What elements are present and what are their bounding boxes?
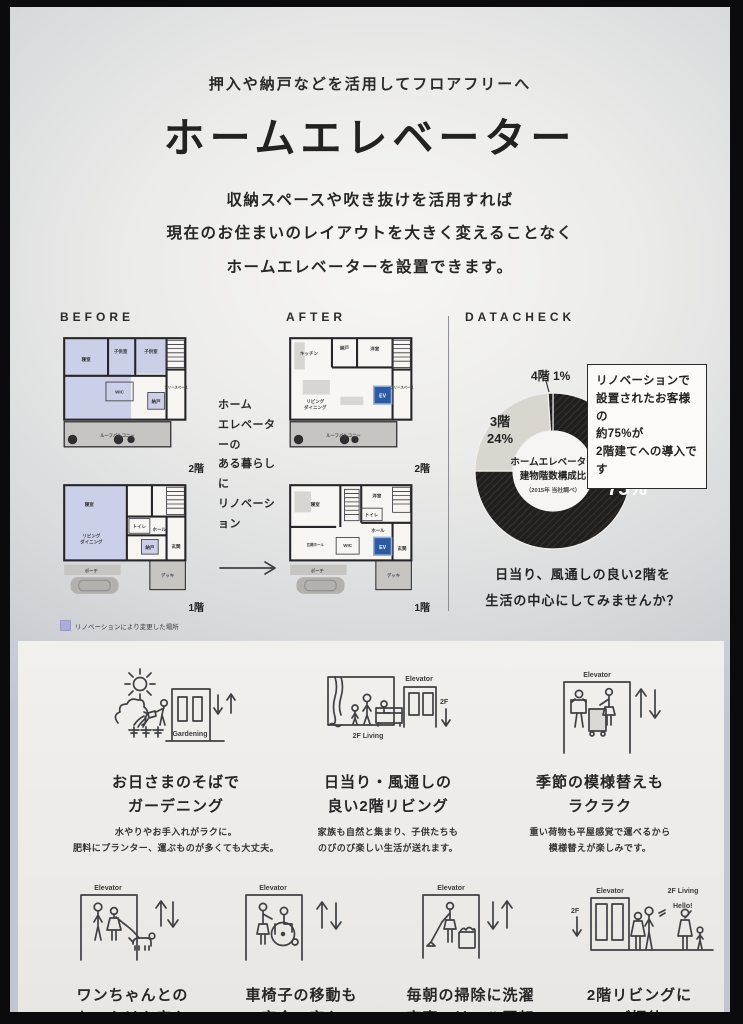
lead-text: 収納スペースや吹き抜けを活用すれば 現在のお住まいのレイアウトを大きく変えること… [10, 184, 730, 284]
room-label: リビング [306, 398, 324, 405]
room-label: リビング [82, 533, 100, 540]
before-1f-floorplan: 寝室 トイレ ホール 納戸 玄関 リビング ダイニング ポーチ デッキ [60, 481, 210, 598]
room-label: ポーチ [311, 568, 325, 575]
room-label: 子供室 [144, 348, 158, 355]
datacheck-section: DATACHECK 4階 1% 3階 24% [465, 310, 723, 614]
lead-line: 現在のお住まいのレイアウトを大きく変えることなく [10, 217, 730, 250]
greeting-guests-icon: Elevator 2F 2F Living Hello! [555, 878, 724, 976]
section-divider [448, 316, 449, 611]
benefit-title: お日さまのそばでガーデニング [70, 771, 282, 818]
benefit-title: 季節の模様替えもラクラク [494, 771, 706, 818]
room-label: トイレ [133, 524, 147, 529]
2f-label: 2F [571, 908, 580, 915]
room-label: 玄関 [171, 543, 180, 550]
room-label: 寝室 [310, 501, 320, 508]
dog-walk-icon: Elevator [48, 878, 217, 976]
room-label: デッキ [387, 572, 401, 579]
cleaning-icon: Elevator [386, 878, 555, 976]
ev-label: EV [379, 394, 386, 400]
elevator-label: Elevator [596, 888, 624, 895]
after-label: AFTER [286, 310, 436, 324]
2f-living-label: 2F Living [667, 888, 698, 895]
room-label: 納戸 [145, 544, 154, 551]
benefit-title: 日当り・風通しの良い2階リビング [282, 771, 494, 818]
benefit-title: 毎朝の掃除に洗濯家事ではフル回転 [386, 984, 555, 1012]
benefit-gardening: Gardening お日さまのそばでガーデニング 水やりやお手入れがラクに。肥料… [70, 665, 282, 856]
benefit-desc: 家族も自然と集まり、子供たちものびのび楽しい生活が送れます。 [282, 824, 494, 856]
floor-share-donut: 4階 1% 3階 24% 2階 75% ホームエレベーター 建物階数構成比 （2… [465, 334, 723, 560]
room-label: 玄関ホール [307, 542, 325, 547]
elevator-label: Elevator [437, 885, 465, 892]
benefit-title: 車椅子の移動も安全・安心 [217, 984, 386, 1012]
after-2f-floorplan: EV キッチン 納戸 洋室 リビング ダイニング フリースペース ルーフバルコニ… [286, 334, 436, 459]
benefit-dog-walk: Elevator ワンちゃんとのおでかけも安心 いつでも気軽に散歩にいけます。 [48, 878, 217, 1012]
room-label: 子供室 [114, 348, 128, 355]
before-2f-floorplan: 寝室 子供室 子供室 フリースペース WIC 納戸 ルーフバルコニー [60, 334, 210, 459]
room-label: フリースペース [164, 384, 188, 389]
benefits-row-2: Elevator ワンちゃんとのおでかけも安心 いつでも気軽に散歩にいけます。 [18, 878, 724, 1012]
benefit-seasonal-move: Elevator 季節の模様替えもラクラク 重い荷物も平屋感覚で運べるから模様替… [494, 665, 706, 856]
ev-label: EV [379, 545, 386, 551]
room-label: WIC [115, 389, 124, 394]
2f-living-label: 2F Living [353, 733, 384, 740]
slice-label-3f: 3階 24% [477, 414, 523, 448]
benefits-row-1: Gardening お日さまのそばでガーデニング 水やりやお手入れがラクに。肥料… [18, 665, 724, 856]
elevator-label: Elevator [94, 885, 122, 892]
before-label: BEFORE [60, 310, 210, 324]
room-label: 納戸 [152, 398, 161, 405]
gardening-icon: Gardening [70, 665, 282, 763]
tagline: 押入や納戸などを活用してフロアフリーへ [10, 73, 730, 94]
right-arrow-icon [218, 559, 280, 577]
gardening-label: Gardening [172, 731, 207, 738]
room-label: ホール [153, 526, 167, 533]
room-label: ポーチ [85, 568, 99, 575]
before-column: BEFORE 寝室 子供室 子供室 フリースペース WIC 納戸 [60, 310, 210, 631]
room-label: トイレ [365, 513, 379, 518]
room-label: フリースペース [390, 384, 414, 389]
benefit-wheelchair: Elevator 車椅子の移動も安全・安心 行動範囲も広がって毎日がイキイキ。 [217, 878, 386, 1012]
header: 押入や納戸などを活用してフロアフリーへ ホームエレベーター 収納スペースや吹き抜… [10, 7, 730, 284]
datacheck-label: DATACHECK [465, 310, 723, 324]
room-label: WIC [343, 543, 352, 548]
after-column: AFTER EV キッチン 納戸 洋室 リビング [286, 310, 436, 620]
room-label: 納戸 [340, 345, 349, 352]
living-room-icon: Elevator 2F 2F Living [282, 665, 494, 763]
hello-label: Hello! [673, 903, 692, 910]
room-label: ダイニング [80, 539, 103, 546]
floor-label-1f: 1階 [60, 599, 204, 614]
room-label: ダイニング [304, 404, 327, 411]
comparison-section: BEFORE 寝室 子供室 子供室 フリースペース WIC 納戸 [10, 284, 730, 631]
benefit-housework: Elevator 毎朝の掃除に洗濯家事ではフル回転 洗濯物や掃除機もラクラク運べ… [386, 878, 555, 1012]
floor-label-2f: 2階 [286, 460, 430, 475]
floor-label-1f: 1階 [286, 599, 430, 614]
elevator-label: Elevator [259, 885, 287, 892]
slice-label-4f: 4階 1% [531, 367, 570, 384]
renovation-caption: ホーム エレベーターの ある暮らしに リノベーション [218, 396, 284, 584]
room-label: 寝室 [84, 501, 94, 508]
benefit-desc: 水やりやお手入れがラクに。肥料にプランター、運ぶものが多くても大丈夫。 [70, 824, 282, 856]
room-label: 洋室 [372, 493, 381, 500]
room-label: 玄関 [397, 545, 406, 552]
home-elevator-poster: 押入や納戸などを活用してフロアフリーへ ホームエレベーター 収納スペースや吹き抜… [10, 7, 730, 1012]
moving-luggage-icon: Elevator [494, 665, 706, 763]
2f-label: 2F [440, 699, 449, 706]
renovation-legend: リノベーションにより変更した場所 [60, 620, 210, 631]
benefit-2f-living: Elevator 2F 2F Living 日当り・風通しの良い2階リビング 家… [282, 665, 494, 856]
legend-swatch [60, 620, 71, 631]
floor-label-2f: 2階 [60, 460, 204, 475]
benefit-invite-guests: Elevator 2F 2F Living Hello! 2階リビングにご招待 … [555, 878, 724, 1012]
elevator-label: Elevator [405, 676, 433, 683]
photo-frame: 押入や納戸などを活用してフロアフリーへ ホームエレベーター 収納スペースや吹き抜… [0, 0, 743, 1024]
after-1f-floorplan: EV 寝室 洋室 トイレ ホール 玄関ホール WIC 玄関 ポーチ デッキ [286, 481, 436, 598]
room-label: デッキ [161, 572, 175, 579]
legend-text: リノベーションにより変更した場所 [75, 621, 179, 631]
wheelchair-icon: Elevator [217, 878, 386, 976]
chart-callout: リノベーションで 設置されたお客様の 約75%が 2階建てへの導入です [587, 364, 707, 489]
elevator-label: Elevator [583, 672, 611, 679]
page-title: ホームエレベーター [10, 104, 730, 164]
benefit-title: ワンちゃんとのおでかけも安心 [48, 984, 217, 1012]
lead-line: 収納スペースや吹き抜けを活用すれば [10, 184, 730, 217]
room-label: ホール [371, 527, 385, 534]
lead-line: ホームエレベーターを設置できます。 [10, 251, 730, 284]
room-label: 洋室 [370, 346, 379, 353]
benefit-title: 2階リビングにご招待 [555, 984, 724, 1012]
room-label: 寝室 [81, 356, 91, 363]
benefit-desc: 重い荷物も平屋感覚で運べるから模様替えが楽しみです。 [494, 824, 706, 856]
benefits-panel: Gardening お日さまのそばでガーデニング 水やりやお手入れがラクに。肥料… [18, 641, 724, 1012]
